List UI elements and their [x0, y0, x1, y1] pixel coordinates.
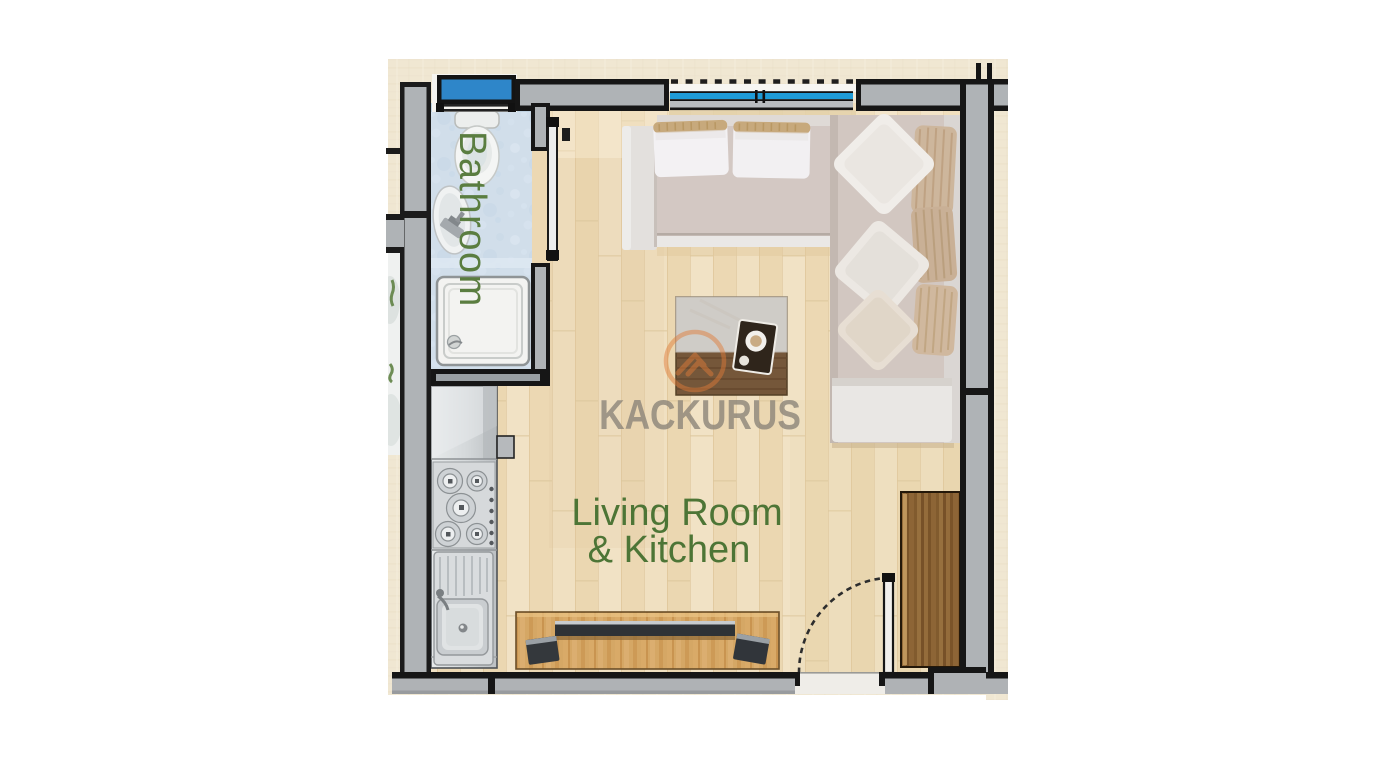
svg-text:& Kitchen: & Kitchen	[588, 529, 751, 571]
svg-text:KACKURUS: KACKURUS	[599, 392, 801, 438]
svg-text:Bathroom: Bathroom	[451, 131, 493, 308]
svg-text:Living Room: Living Room	[571, 492, 782, 534]
